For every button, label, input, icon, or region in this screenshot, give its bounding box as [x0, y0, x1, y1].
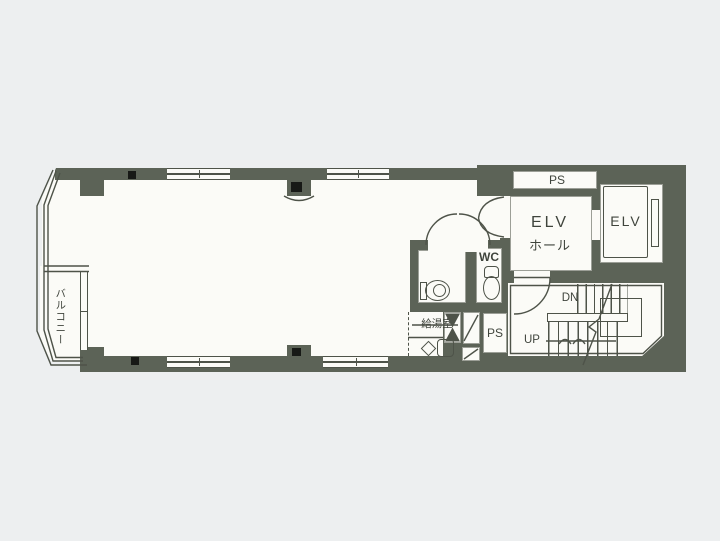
label-ps-bottom: PS — [483, 325, 507, 340]
duct-box-lower — [462, 347, 480, 361]
duct-box-upper — [463, 312, 480, 344]
label-ps-top: PS — [515, 172, 599, 188]
label-stairs-up: UP — [518, 334, 546, 348]
label-kitchenette: 給湯室 — [414, 317, 460, 331]
opening-elevator-door — [592, 210, 600, 240]
sink-basin — [437, 339, 454, 357]
label-elevator-hall-1: ELV — [518, 214, 582, 232]
label-wc: WC — [477, 250, 501, 264]
window-bottom-2 — [323, 356, 388, 368]
window-bottom-1 — [167, 356, 230, 368]
opening-hall-door — [500, 196, 510, 238]
floor-plan-canvas: PS ELV ホール ELV WC DN UP PS 給湯室 バルコニー — [0, 0, 720, 541]
window-balcony — [80, 272, 88, 350]
main-room — [42, 170, 410, 356]
sash-tick-column-bottom — [292, 348, 301, 356]
toilet-bowl-wc — [483, 276, 500, 300]
label-stairs-down: DN — [557, 292, 583, 306]
sash-tick-column-top — [291, 182, 302, 192]
column-top-left — [80, 168, 104, 196]
label-balcony: バルコニー — [52, 280, 68, 354]
wall-right — [664, 165, 686, 372]
label-elevator-hall-2: ホール — [514, 238, 586, 253]
toilet-bowl-inner — [433, 284, 446, 297]
opening-stair-door — [514, 271, 550, 283]
window-top-1 — [167, 168, 230, 180]
sash-tick-top-left — [128, 171, 136, 179]
elevator-counterweight — [651, 199, 659, 247]
elevator-hall — [510, 196, 592, 271]
column-bottom-left — [80, 347, 104, 372]
window-top-2 — [327, 168, 389, 180]
stair-turn-rail — [600, 298, 642, 337]
label-elevator-car: ELV — [604, 213, 648, 229]
sash-tick-bottom-left — [131, 357, 139, 365]
